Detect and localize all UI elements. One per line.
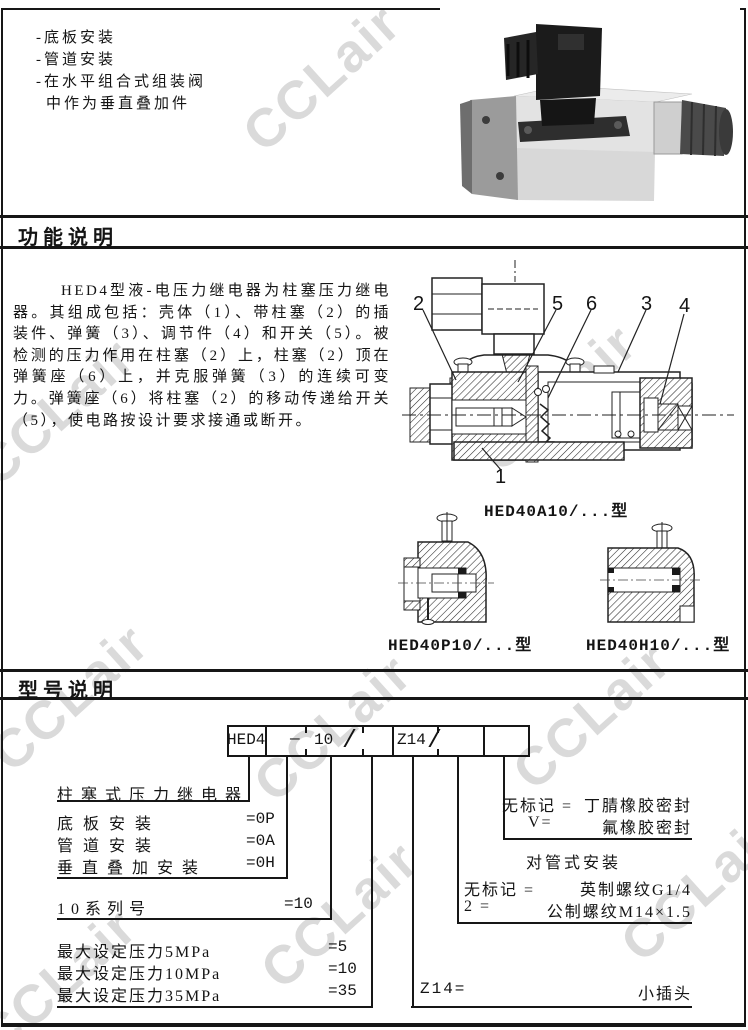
code-box-divider: [483, 725, 485, 757]
label-stack-mount: 垂直叠加安装: [57, 854, 207, 878]
connector-line: [457, 757, 459, 924]
callout-5: 5: [552, 293, 563, 316]
intro-line: -在水平组合式组装阀: [36, 70, 206, 91]
plate-mount-diagram: [398, 510, 498, 630]
code-slash: /: [342, 726, 357, 755]
thread-value-metric: 公制螺纹M14×1.5: [547, 898, 692, 922]
callout-6: 6: [586, 293, 597, 316]
intro-line: 中作为垂直叠加件: [46, 92, 190, 113]
code-box-tick: [305, 749, 307, 757]
thread-value-default: 英制螺纹G1/4: [580, 876, 692, 900]
plug-value: 小插头: [638, 980, 692, 1004]
pipe-mount-title: 对管式安装: [526, 849, 621, 873]
thread-row-metric: 2 = 公制螺纹M14×1.5: [464, 898, 692, 922]
section-divider: [0, 215, 748, 218]
code-box-tick: [305, 725, 307, 733]
value-pressure-10: =10: [328, 960, 357, 978]
code-slash: /: [427, 726, 442, 755]
intro-line: -管道安装: [36, 48, 116, 69]
plug-key: Z14=: [420, 980, 466, 1004]
thread-row-default: 无标记 = 英制螺纹G1/4: [464, 876, 692, 900]
connector-line: [411, 1006, 692, 1008]
model-section-header: 型号说明: [18, 674, 118, 703]
caption-plate-variant: HED40P10/...型: [388, 631, 532, 655]
seal-row-default: 无标记 = 丁腈橡胶密封: [502, 792, 692, 816]
function-paragraph: HED4型液-电压力继电器为柱塞压力继电器。其组成包括：壳体（1）、带柱塞（2）…: [13, 281, 391, 432]
caption-stack-variant: HED40H10/...型: [586, 631, 730, 655]
plug-row: Z14= 小插头: [420, 980, 692, 1004]
label-series: 10系列号: [57, 895, 151, 919]
connector-line: [286, 757, 288, 879]
callout-2: 2: [413, 293, 424, 316]
code-prefix: HED4: [227, 731, 265, 749]
value-pressure-5: =5: [328, 938, 347, 956]
label-pressure-5: 最大设定压力5MPa: [57, 938, 211, 962]
seal-key-viton: V=: [528, 814, 553, 838]
caption-main-variant: HED40A10/...型: [484, 497, 628, 521]
code-series: 10: [314, 731, 333, 749]
thread-key-metric: 2 =: [464, 898, 491, 922]
label-plate-mount: 底板安装: [57, 810, 161, 834]
code-box-divider: [392, 725, 394, 757]
connector-line: [57, 1006, 373, 1008]
main-diagram: [398, 258, 740, 488]
datasheet-page: CCLair CCLair CCLair CCLair CCLair CCLai…: [0, 0, 748, 1030]
value-pressure-35: =35: [328, 982, 357, 1000]
connector-line: [371, 757, 373, 1008]
value-series: =10: [284, 895, 313, 913]
connector-line: [457, 922, 692, 924]
label-pipe-mount: 管道安装: [57, 832, 161, 856]
seal-value-default: 丁腈橡胶密封: [584, 792, 692, 816]
seal-key-default: 无标记 =: [502, 792, 573, 816]
value-stack-mount: =0H: [246, 854, 275, 872]
callout-4: 4: [679, 295, 690, 318]
value-plate-mount: =0P: [246, 810, 275, 828]
code-box-divider: [265, 725, 267, 757]
seal-value-viton: 氟橡胶密封: [602, 814, 692, 838]
label-relay-type: 柱塞式压力继电器: [57, 781, 249, 805]
code-box-tick: [362, 749, 364, 757]
callout-1: 1: [495, 466, 506, 489]
label-pressure-35: 最大设定压力35MPa: [57, 982, 221, 1006]
product-photo: [440, 4, 740, 204]
code-dash: —: [290, 730, 300, 748]
code-plug: Z14: [397, 731, 426, 749]
seal-row-viton: V= 氟橡胶密封: [528, 814, 692, 838]
thread-key-default: 无标记 =: [464, 876, 535, 900]
connector-line: [412, 757, 414, 1008]
callout-3: 3: [641, 293, 652, 316]
connector-line: [330, 757, 332, 920]
intro-line: -底板安装: [36, 26, 116, 47]
value-pipe-mount: =0A: [246, 832, 275, 850]
connector-line: [503, 838, 692, 840]
stack-mount-diagram: [600, 518, 700, 630]
section-divider: [0, 669, 748, 672]
label-pressure-10: 最大设定压力10MPa: [57, 960, 221, 984]
function-section-header: 功能说明: [18, 221, 118, 250]
code-box-tick: [362, 725, 364, 733]
